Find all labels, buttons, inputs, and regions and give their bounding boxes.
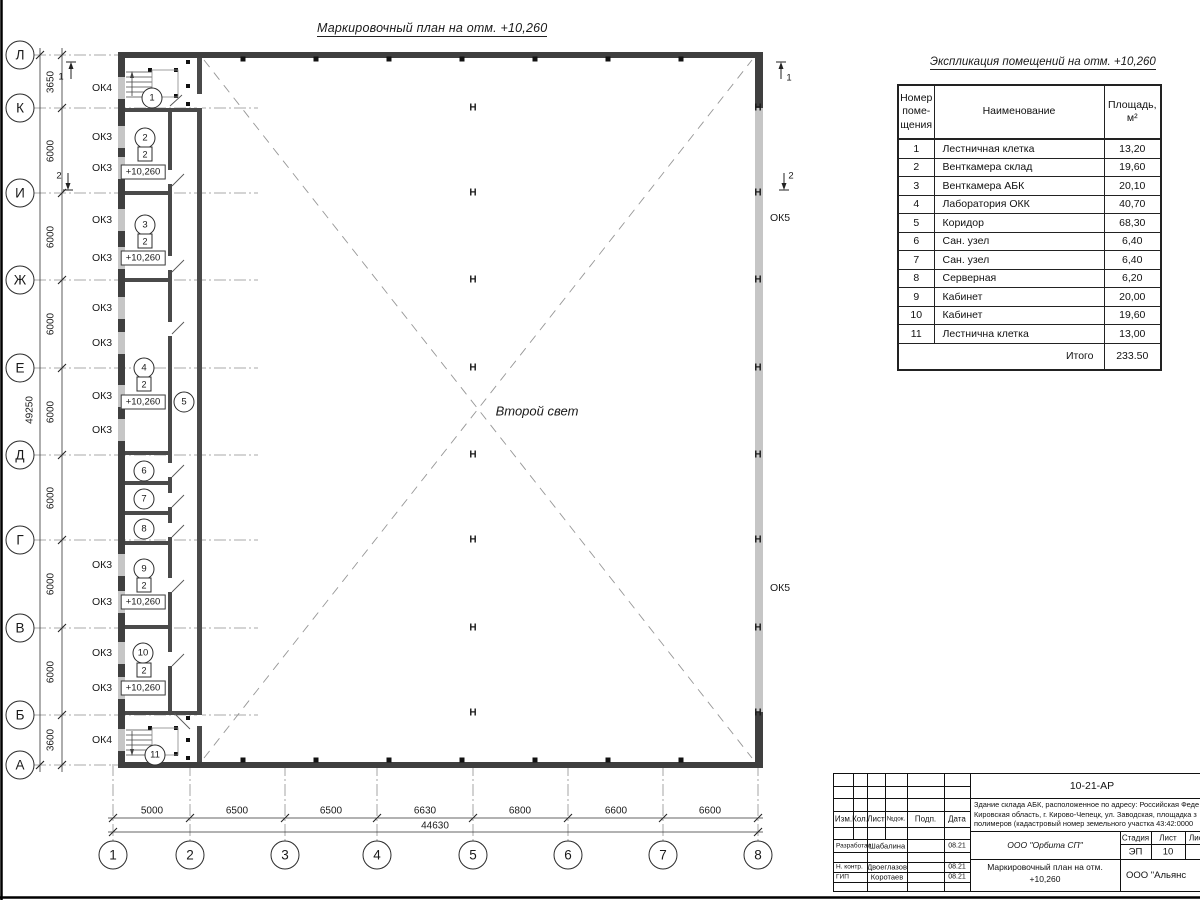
floor-mark-square: 2 <box>137 377 152 392</box>
room-name-cell: Серверная <box>934 269 1104 288</box>
sheet-title-line1: Маркировочный план на отм. <box>970 859 1120 872</box>
room-explication-table: Номер поме- щенияНаименованиеПлощадь, м²… <box>897 84 1162 371</box>
client-org-name: ООО "Альянс <box>1126 859 1200 891</box>
floor-mark-square: 2 <box>138 234 153 249</box>
title-block: 10-21-АР ООО "Орбита СП" Маркировочный п… <box>833 773 1200 892</box>
window-tag: ОК5 <box>770 212 790 224</box>
room-number-cell: 5 <box>898 214 934 233</box>
steel-column-symbol: Н <box>469 188 476 199</box>
stamp-grid-header: Подп. <box>915 815 936 824</box>
column-marker <box>606 57 611 62</box>
stamp-grid-header: Лист <box>867 815 884 824</box>
room-number-cell: 1 <box>898 139 934 158</box>
elevation-mark-box: +10,260 <box>121 165 166 180</box>
dimension-total-label: 49250 <box>25 396 36 424</box>
axis-bubble-col: 3 <box>271 841 300 870</box>
stamp-stage-header: Лист <box>1159 833 1176 842</box>
window-tag: ОК3 <box>92 214 112 226</box>
elevation-mark-box: +10,260 <box>121 395 166 410</box>
steel-column-symbol: Н <box>754 363 761 374</box>
steel-column-symbol: Н <box>754 450 761 461</box>
column-dot <box>174 752 178 756</box>
column-marker <box>533 57 538 62</box>
dimension-label: 3600 <box>46 729 57 751</box>
window-tag: ОК3 <box>92 131 112 143</box>
dimension-label: 6500 <box>320 805 342 816</box>
window-opening <box>118 297 125 319</box>
steel-column-symbol: Н <box>754 708 761 719</box>
room-number-bubble: 9 <box>134 559 155 580</box>
column-dot <box>148 726 152 730</box>
stamp-date: 08.21 <box>948 874 966 881</box>
room-name-cell: Лаборатория ОКК <box>934 195 1104 214</box>
dimension-label: 6000 <box>46 139 57 161</box>
table-row: 11Лестнична клетка13,00 <box>898 325 1161 344</box>
axis-bubble-col: 5 <box>459 841 488 870</box>
column-dot <box>174 94 178 98</box>
axis-bubble-row: Е <box>6 354 35 383</box>
column-marker <box>241 758 246 763</box>
stamp-grid-header: Кол. <box>852 815 868 824</box>
axis-bubble-row: Б <box>6 701 35 730</box>
column-dot <box>186 716 190 720</box>
stamp-role: Разработал <box>836 842 871 849</box>
column-dot <box>186 60 190 64</box>
column-dot <box>186 738 190 742</box>
window-opening <box>118 729 125 751</box>
table-row: 1Лестничная клетка13,20 <box>898 139 1161 158</box>
room-number-bubble: 10 <box>133 643 154 664</box>
dimension-label: 6000 <box>46 400 57 422</box>
elevation-mark-box: +10,260 <box>121 681 166 696</box>
steel-column-symbol: Н <box>469 363 476 374</box>
section-mark-number: 1 <box>58 72 63 83</box>
room-number-cell: 8 <box>898 269 934 288</box>
room-number-cell: 4 <box>898 195 934 214</box>
room-area-cell: 40,70 <box>1104 195 1161 214</box>
steel-column-symbol: Н <box>754 275 761 286</box>
stamp-name: Двоеглазов <box>867 863 907 872</box>
dimension-label: 6600 <box>699 805 721 816</box>
room-name-cell: Венткамера АБК <box>934 177 1104 196</box>
steel-column-symbol: Н <box>469 275 476 286</box>
room-number-bubble: 11 <box>145 745 166 766</box>
sheet-title-line2: +10,260 <box>970 874 1120 886</box>
column-marker <box>387 758 392 763</box>
axis-bubble-row: А <box>6 751 35 780</box>
dimension-label: 6000 <box>46 225 57 247</box>
column-marker <box>314 57 319 62</box>
column-marker <box>314 758 319 763</box>
axis-bubble-col: 7 <box>649 841 678 870</box>
steel-column-symbol: Н <box>754 103 761 114</box>
table-row: 3Венткамера АБК20,10 <box>898 177 1161 196</box>
steel-column-symbol: Н <box>469 535 476 546</box>
room-area-cell: 19,60 <box>1104 158 1161 177</box>
room-number-cell: 6 <box>898 232 934 251</box>
stamp-stage-header: Стадия <box>1122 833 1149 842</box>
room-area-cell: 13,00 <box>1104 325 1161 344</box>
room-area-cell: 68,30 <box>1104 214 1161 233</box>
room-name-cell: Сан. узел <box>934 232 1104 251</box>
section-mark-number: 1 <box>786 73 791 84</box>
table-row: 8Серверная6,20 <box>898 269 1161 288</box>
stamp-name: Коротаев <box>871 873 903 882</box>
stamp-stage-header: Листов <box>1189 833 1200 842</box>
steel-column-symbol: Н <box>469 623 476 634</box>
document-number: 10-21-АР <box>970 774 1200 798</box>
window-tag: ОК3 <box>92 424 112 436</box>
window-tag: ОК3 <box>92 252 112 264</box>
room-name-cell: Лестнична клетка <box>934 325 1104 344</box>
table-row: 2Венткамера склад19,60 <box>898 158 1161 177</box>
dimension-label: 6000 <box>46 486 57 508</box>
axis-bubble-row: Ж <box>6 266 35 295</box>
window-opening <box>118 332 125 354</box>
table-row: 9Кабинет20,00 <box>898 288 1161 307</box>
stamp-address-line: Здание склада АБК, расположенное по адре… <box>974 800 1199 809</box>
table-column-header: Площадь, м² <box>1104 85 1161 139</box>
window-opening <box>118 126 125 148</box>
explication-table-title: Экспликация помещений на отм. +10,260 <box>930 56 1156 70</box>
axis-bubble-row: Д <box>6 441 35 470</box>
window-opening <box>118 642 125 664</box>
axis-bubble-row: Г <box>6 526 35 555</box>
steel-column-symbol: Н <box>754 188 761 199</box>
elevation-mark-box: +10,260 <box>121 251 166 266</box>
explication-table-header: Номер поме- щенияНаименованиеПлощадь, м² <box>898 85 1161 139</box>
total-value-cell: 233.50 <box>1104 343 1161 370</box>
stamp-date: 08.21 <box>948 842 966 849</box>
axis-bubble-col: 6 <box>554 841 583 870</box>
room-number-bubble: 4 <box>134 358 155 379</box>
drawing-sheet: Маркировочный план на отм. +10,260 Второ… <box>0 0 1200 900</box>
column-marker <box>241 57 246 62</box>
dimension-label: 3650 <box>46 70 57 92</box>
stamp-role: Н. контр. <box>836 864 863 871</box>
window-tag: ОК3 <box>92 559 112 571</box>
room-number-bubble: 8 <box>134 519 155 540</box>
column-marker <box>606 758 611 763</box>
stamp-date: 08.21 <box>948 864 966 871</box>
window-opening <box>118 209 125 231</box>
room-area-cell: 6,40 <box>1104 232 1161 251</box>
dimension-label: 6630 <box>414 805 436 816</box>
column-marker <box>460 57 465 62</box>
room-number-cell: 2 <box>898 158 934 177</box>
second-light-label: Второй свет <box>496 404 579 419</box>
floor-mark-square: 2 <box>137 578 152 593</box>
room-number-bubble: 6 <box>134 461 155 482</box>
dimension-label: 6000 <box>46 313 57 335</box>
column-marker <box>679 57 684 62</box>
axis-bubble-col: 8 <box>744 841 773 870</box>
room-area-cell: 20,00 <box>1104 288 1161 307</box>
window-tag: ОК3 <box>92 596 112 608</box>
axis-bubble-col: 2 <box>176 841 205 870</box>
total-label-cell: Итого <box>898 343 1104 370</box>
dimension-label: 6800 <box>509 805 531 816</box>
column-marker <box>387 57 392 62</box>
window-tag: ОК4 <box>92 734 112 746</box>
dimension-label: 6500 <box>226 805 248 816</box>
stamp-grid-header: Изм. <box>835 815 852 824</box>
table-row: 4Лаборатория ОКК40,70 <box>898 195 1161 214</box>
room-number-bubble: 2 <box>135 128 156 149</box>
table-total-row: Итого233.50 <box>898 343 1161 370</box>
dimension-label: 6600 <box>605 805 627 816</box>
room-name-cell: Венткамера склад <box>934 158 1104 177</box>
window-opening <box>118 77 125 99</box>
window-opening <box>118 419 125 441</box>
plan-title: Маркировочный план на отм. +10,260 <box>317 21 547 37</box>
room-number-cell: 11 <box>898 325 934 344</box>
column-marker <box>679 758 684 763</box>
table-row: 6Сан. узел6,40 <box>898 232 1161 251</box>
window-tag: ОК3 <box>92 302 112 314</box>
axis-bubble-row: И <box>6 179 35 208</box>
window-tag: ОК3 <box>92 647 112 659</box>
section-mark-number: 2 <box>788 171 793 182</box>
room-area-cell: 20,10 <box>1104 177 1161 196</box>
table-column-header: Номер поме- щения <box>898 85 934 139</box>
steel-column-symbol: Н <box>754 623 761 634</box>
room-area-cell: 19,60 <box>1104 306 1161 325</box>
room-number-cell: 9 <box>898 288 934 307</box>
room-name-cell: Лестничная клетка <box>934 139 1104 158</box>
column-dot <box>148 68 152 72</box>
design-org-name: ООО "Орбита СП" <box>970 831 1120 859</box>
steel-column-symbol: Н <box>754 535 761 546</box>
axis-bubble-col: 4 <box>363 841 392 870</box>
stamp-grid-header: №док. <box>887 816 905 823</box>
stamp-stage-value: 10 <box>1163 846 1174 857</box>
column-dot <box>186 102 190 106</box>
room-name-cell: Кабинет <box>934 288 1104 307</box>
window-tag: ОК3 <box>92 390 112 402</box>
stamp-address-line: полимеров (кадастровый номер земельного … <box>974 819 1193 828</box>
column-marker <box>533 758 538 763</box>
room-number-bubble: 5 <box>174 392 195 413</box>
stamp-grid-header: Дата <box>948 815 966 824</box>
steel-column-symbol: Н <box>469 103 476 114</box>
window-tag: ОК3 <box>92 337 112 349</box>
window-tag: ОК3 <box>92 162 112 174</box>
dimension-label: 5000 <box>141 805 163 816</box>
floor-mark-square: 2 <box>137 663 152 678</box>
axis-bubble-row: В <box>6 614 35 643</box>
elevation-mark-box: +10,260 <box>121 595 166 610</box>
stamp-stage-value: ЭП <box>1129 846 1143 857</box>
table-row: 5Коридор68,30 <box>898 214 1161 233</box>
room-name-cell: Сан. узел <box>934 251 1104 270</box>
room-number-bubble: 3 <box>135 215 156 236</box>
dimension-label: 6000 <box>46 573 57 595</box>
room-name-cell: Кабинет <box>934 306 1104 325</box>
table-row: 7Сан. узел6,40 <box>898 251 1161 270</box>
room-area-cell: 13,20 <box>1104 139 1161 158</box>
window-tag: ОК4 <box>92 82 112 94</box>
axis-bubble-row: К <box>6 94 35 123</box>
axis-bubble-row: Л <box>6 41 35 70</box>
room-name-cell: Коридор <box>934 214 1104 233</box>
stamp-role: ГИП <box>836 874 849 881</box>
dimension-total-label: 44630 <box>421 820 449 831</box>
window-tag: ОК5 <box>770 582 790 594</box>
steel-column-symbol: Н <box>469 708 476 719</box>
room-number-bubble: 7 <box>134 489 155 510</box>
walls-group <box>118 52 763 768</box>
stamp-name: Шабалина <box>869 841 905 850</box>
room-number-cell: 3 <box>898 177 934 196</box>
room-number-bubble: 1 <box>142 88 163 109</box>
room-number-cell: 7 <box>898 251 934 270</box>
room-area-cell: 6,40 <box>1104 251 1161 270</box>
dimension-label: 6000 <box>46 660 57 682</box>
axis-bubble-col: 1 <box>99 841 128 870</box>
window-opening <box>118 554 125 576</box>
table-column-header: Наименование <box>934 85 1104 139</box>
steel-column-symbol: Н <box>469 450 476 461</box>
column-marker <box>460 758 465 763</box>
column-dot <box>186 756 190 760</box>
column-dot <box>186 84 190 88</box>
stamp-address-line: Кировская область, г. Кирово-Чепецк, ул.… <box>974 810 1197 819</box>
room-area-cell: 6,20 <box>1104 269 1161 288</box>
floor-mark-square: 2 <box>138 147 153 162</box>
section-mark-number: 2 <box>56 171 61 182</box>
table-row: 10Кабинет19,60 <box>898 306 1161 325</box>
room-number-cell: 10 <box>898 306 934 325</box>
window-tag: ОК3 <box>92 682 112 694</box>
